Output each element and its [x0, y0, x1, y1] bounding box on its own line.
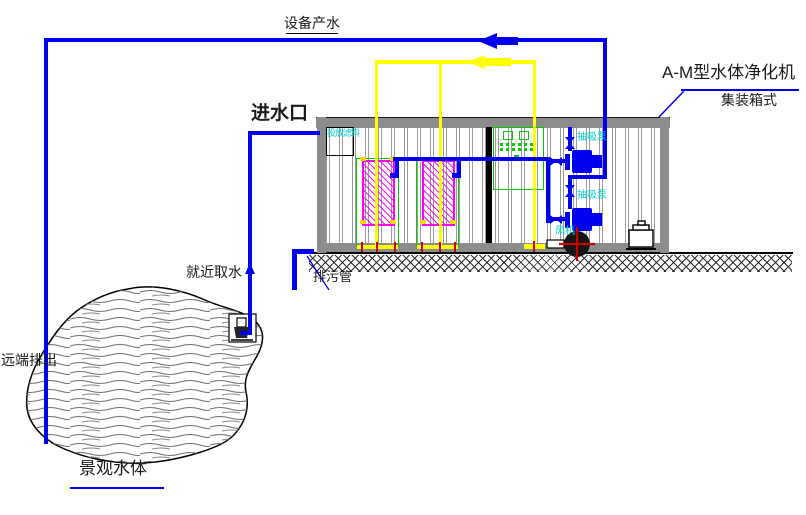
remote-discharge-label: 远端排出 — [1, 353, 57, 368]
product-water-flow-arrow — [478, 33, 518, 49]
machine-label-leader — [659, 91, 684, 117]
machine-type-label: 集装箱式 — [699, 93, 799, 108]
inlet-label: 进水口 — [251, 104, 308, 125]
centerline-ticks — [362, 241, 534, 252]
filter-media-port-label: 投放滤料 — [327, 129, 359, 139]
product-water-underline — [286, 33, 338, 34]
suction-pump-2-label: 抽吸泵 — [577, 190, 607, 201]
nearby-intake-label: 就近取水 — [186, 265, 242, 280]
suction-pump-1-label: 抽吸泵 — [577, 132, 607, 143]
machine-name-label: A-M型水体净化机 — [662, 64, 795, 83]
aeration-flow-arrow — [467, 55, 511, 69]
product-water-label: 设备产水 — [284, 16, 340, 31]
drain-pipe-label: 排污管 — [313, 270, 352, 284]
valve-icon — [550, 137, 575, 224]
suction-pump-1-symbol — [565, 150, 602, 173]
lake-label-underline — [70, 487, 164, 489]
fan-label: 风机 — [555, 226, 575, 237]
lake-label: 景观水体 — [79, 460, 147, 479]
diagram-canvas: 设备产水 进水口 就近取水 远端排出 景观水体 排污管 A-M型水体净化机 集装… — [0, 0, 806, 515]
intake-flow-arrow — [245, 263, 255, 274]
dosing-tank-symbol — [626, 221, 656, 249]
machine-name-underline — [681, 89, 799, 91]
